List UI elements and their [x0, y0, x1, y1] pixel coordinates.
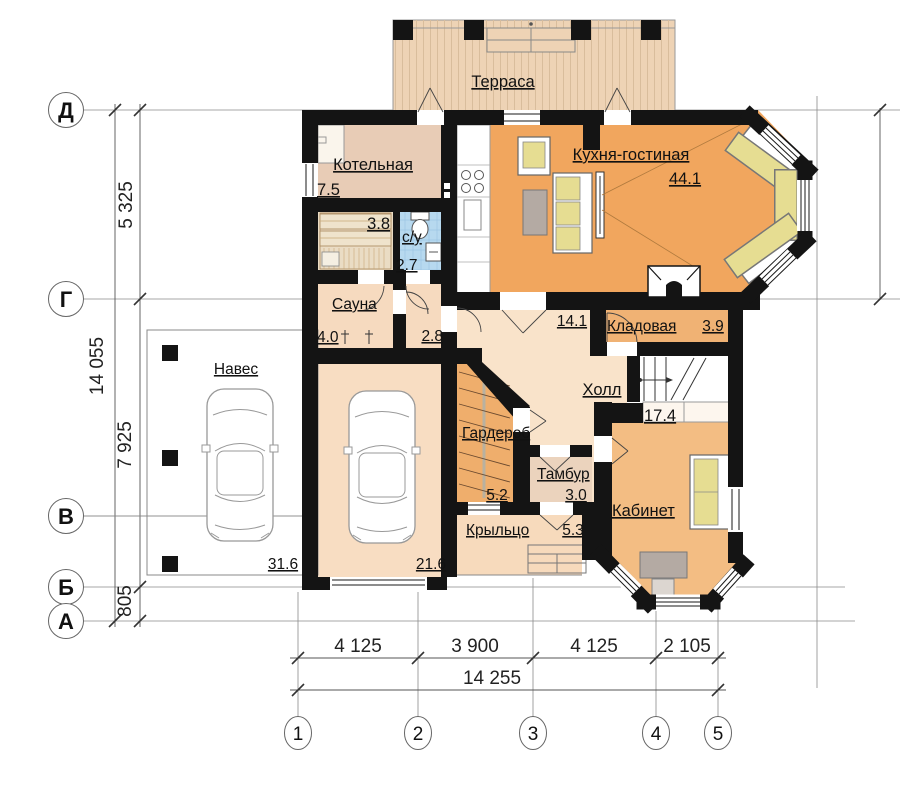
floor-plan-canvas: Д Г В Б А 1 2 3 4 5 5 325 14 055 7 925 8… [0, 0, 910, 785]
area-steam: 3.8 [367, 215, 390, 233]
label-porch: Крыльцо [466, 522, 529, 539]
label-pantry: Кладовая [607, 318, 676, 335]
axis-col-1: 1 [293, 724, 304, 745]
area-wardrobe: 5.2 [486, 487, 508, 504]
area-garage: 21.6 [416, 556, 446, 573]
car-garage [344, 391, 420, 543]
label-sauna: Сауна [332, 296, 377, 313]
armchair [518, 137, 550, 175]
axis-row-v: В [58, 504, 74, 529]
sofa [553, 173, 592, 253]
dim-left-3: 805 [115, 585, 136, 617]
kitchen-counter [457, 125, 490, 302]
area-bathroom: 2.7 [396, 257, 418, 274]
area-vestibule: 3.0 [565, 487, 587, 504]
label-bathroom: с/у [402, 229, 422, 246]
dim-bottom-4: 2 105 [663, 636, 711, 657]
dim-bottom-3: 4 125 [570, 636, 618, 657]
axis-col-4: 4 [651, 724, 662, 745]
dim-left-1: 5 325 [116, 181, 137, 229]
window-office-east [728, 487, 743, 532]
area-hall: 14.1 [557, 313, 587, 330]
label-boiler: Котельная [333, 156, 413, 174]
stairwell [627, 356, 732, 402]
axis-row-g: Г [60, 287, 73, 312]
area-carport: 31.6 [268, 556, 298, 573]
washbasin-icon [426, 243, 441, 261]
axis-col-3: 3 [528, 724, 539, 745]
tv-icon [596, 172, 604, 238]
label-wardrobe: Гардероб [462, 425, 530, 442]
window-kitchen-north [504, 110, 540, 125]
garage-gate [330, 577, 427, 590]
area-corridor: 2.8 [421, 328, 443, 345]
axis-row-b: Б [58, 575, 74, 600]
axis-col-5: 5 [713, 724, 724, 745]
area-sauna: 4.0 [317, 329, 339, 346]
area-boiler: 7.5 [317, 181, 340, 199]
floor-plan-page: Д Г В Б А 1 2 3 4 5 5 325 14 055 7 925 8… [0, 0, 910, 785]
kitchen-cabinet [464, 200, 481, 230]
axis-col-2: 2 [413, 724, 424, 745]
dim-bottom-2: 3 900 [451, 636, 499, 657]
dim-left-total: 14 055 [87, 337, 108, 395]
axis-row-a: А [58, 609, 74, 634]
window-boiler [302, 163, 318, 197]
axis-row-d: Д [58, 98, 74, 123]
fireplace-icon [648, 266, 700, 297]
area-kitchen: 44.1 [669, 170, 701, 188]
label-hall: Холл [583, 381, 622, 399]
area-pantry: 3.9 [702, 318, 724, 335]
desk [640, 552, 687, 578]
label-vestibule: Тамбур [537, 466, 590, 483]
office-sofa [690, 455, 732, 529]
label-terrace: Терраса [471, 73, 535, 91]
dim-left-2: 7 925 [115, 421, 136, 469]
label-office: Кабинет [612, 502, 675, 520]
coffee-table [523, 190, 547, 235]
area-office: 17.4 [644, 407, 676, 425]
sauna-stove [322, 252, 339, 266]
label-carport: Навес [214, 361, 258, 378]
dim-bottom-total: 14 255 [463, 668, 521, 689]
car-carport [202, 389, 278, 541]
area-porch: 5.3 [562, 522, 584, 539]
dim-bottom-1: 4 125 [334, 636, 382, 657]
label-kitchen: Кухня-гостиная [573, 146, 690, 164]
